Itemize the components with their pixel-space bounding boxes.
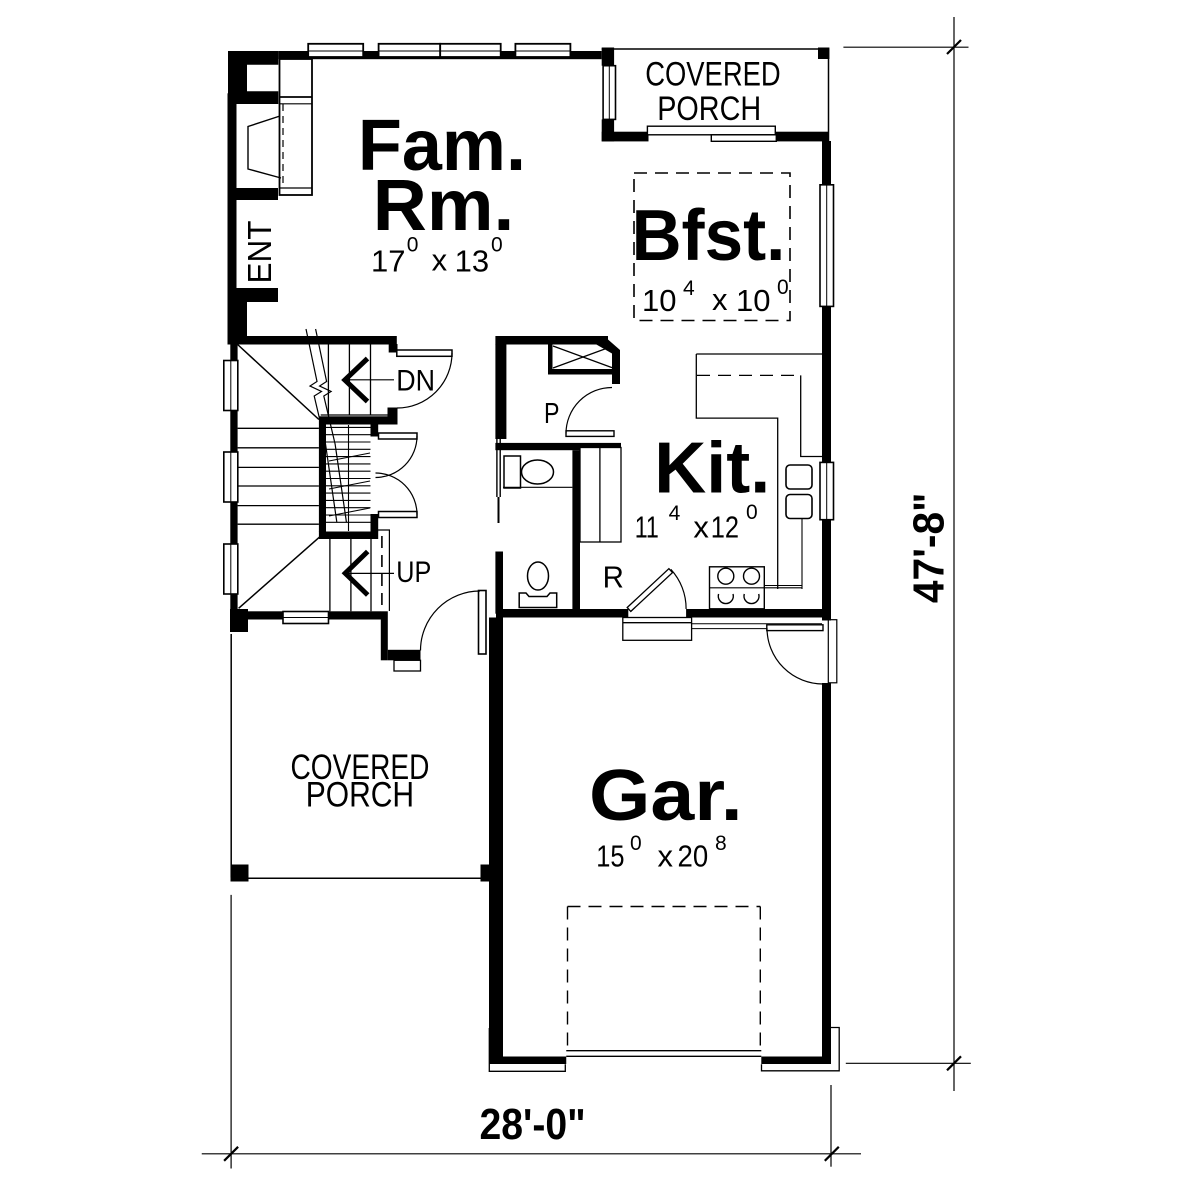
svg-text:0: 0 xyxy=(746,501,758,524)
svg-text:Bfst.: Bfst. xyxy=(632,195,786,276)
svg-text:15: 15 xyxy=(596,839,624,874)
svg-text:UP: UP xyxy=(396,555,431,589)
svg-text:Gar.: Gar. xyxy=(589,756,743,836)
svg-text:COVERED: COVERED xyxy=(645,55,780,94)
svg-text:x: x xyxy=(658,838,674,873)
svg-text:PORCH: PORCH xyxy=(306,774,414,814)
svg-text:Kit.: Kit. xyxy=(654,429,770,509)
svg-text:0: 0 xyxy=(630,832,642,855)
svg-text:12: 12 xyxy=(711,510,739,545)
svg-text:0: 0 xyxy=(777,276,789,299)
svg-text:17: 17 xyxy=(371,244,405,279)
svg-text:0: 0 xyxy=(491,233,503,256)
svg-text:4: 4 xyxy=(683,277,695,300)
svg-text:10: 10 xyxy=(642,283,676,318)
svg-text:PORCH: PORCH xyxy=(657,89,761,128)
svg-text:0: 0 xyxy=(407,234,419,257)
svg-text:11: 11 xyxy=(635,509,659,544)
svg-text:13: 13 xyxy=(455,244,489,279)
svg-text:DN: DN xyxy=(396,364,435,398)
svg-text:47'-8": 47'-8" xyxy=(904,493,953,604)
svg-text:4: 4 xyxy=(669,502,681,525)
svg-text:P: P xyxy=(544,396,559,429)
svg-text:x: x xyxy=(693,509,709,544)
svg-text:R: R xyxy=(603,561,624,595)
svg-text:x: x xyxy=(712,282,728,317)
svg-text:10: 10 xyxy=(736,283,770,318)
svg-text:ENT: ENT xyxy=(241,221,278,284)
svg-text:8: 8 xyxy=(715,832,727,855)
svg-text:20: 20 xyxy=(678,839,709,874)
svg-text:28'-0": 28'-0" xyxy=(480,1099,586,1149)
svg-text:x: x xyxy=(432,243,448,278)
